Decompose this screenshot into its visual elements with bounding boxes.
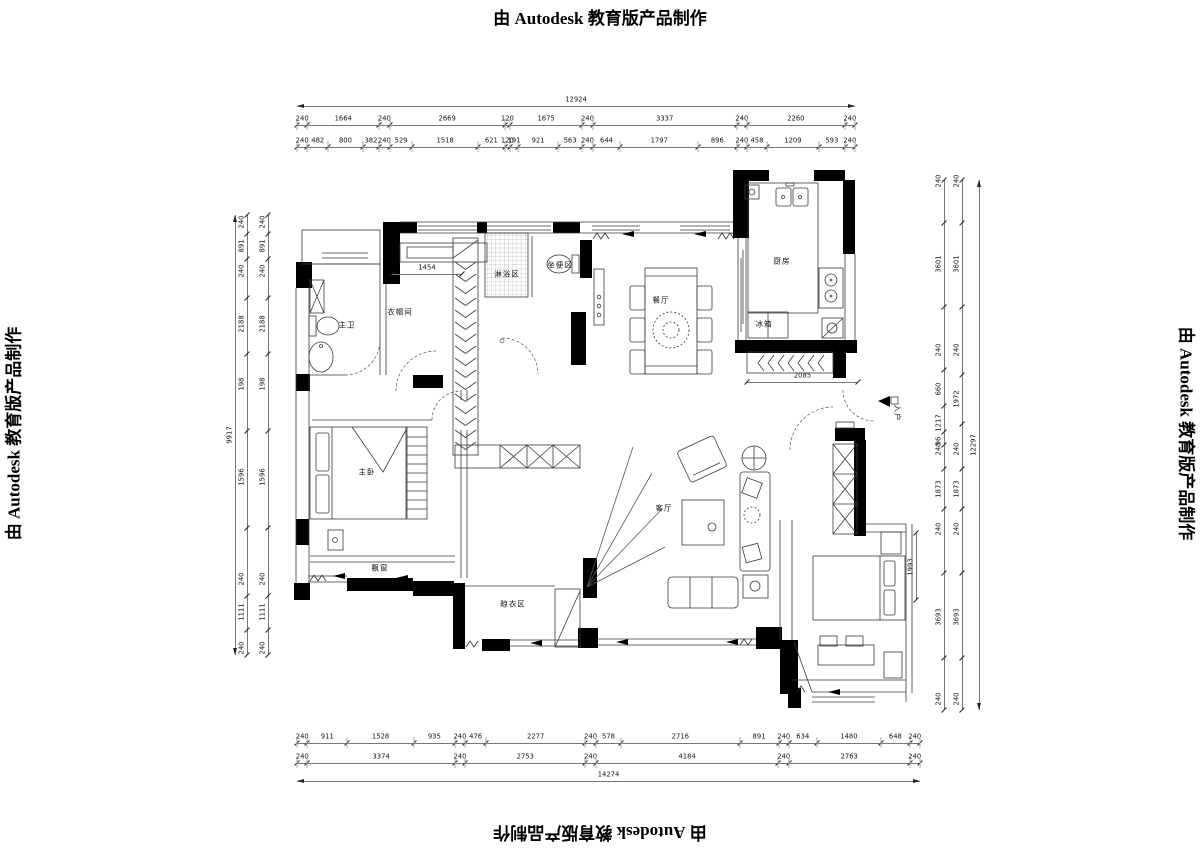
dimension-label: 593 — [825, 138, 838, 145]
dim-tick — [959, 707, 965, 713]
dimension-label: 240 — [260, 573, 267, 586]
dimension-label: 4184 — [678, 754, 695, 761]
dimension-label: 1972 — [954, 390, 961, 407]
dimension-label: 529 — [394, 138, 407, 145]
extension-line — [819, 141, 820, 152]
dimension-label: 2277 — [527, 734, 544, 741]
extension-line — [307, 737, 308, 748]
extension-line — [389, 141, 390, 152]
dimension-label: 1596 — [239, 468, 246, 485]
room-label: 主卧 — [359, 468, 376, 476]
dim-line — [297, 743, 920, 744]
extension-line — [557, 141, 558, 152]
dimension-label: 800 — [339, 138, 352, 145]
room-label: 衣帽间 — [387, 308, 413, 316]
dimension-label: 240 — [936, 523, 943, 536]
dimension-label: 240 — [936, 175, 943, 188]
dim-line — [297, 147, 855, 148]
extension-line — [477, 141, 478, 152]
dimension-label: 648 — [889, 734, 902, 741]
dimension-label: 198 — [260, 378, 267, 391]
dimension-label: 3601 — [954, 255, 961, 272]
dim-line — [916, 533, 917, 600]
dimension-label: 621 — [485, 138, 498, 145]
dim-line — [297, 125, 855, 126]
dimension-label: 14274 — [598, 772, 620, 779]
room-label: 坐便区 — [547, 261, 573, 269]
dimension-label: 563 — [564, 138, 577, 145]
dimension-label: 198 — [239, 378, 246, 391]
dimension-label: 935 — [428, 734, 441, 741]
dimension-label: 458 — [750, 138, 763, 145]
dimension-label: 644 — [600, 138, 613, 145]
dim-line — [747, 382, 858, 383]
dimension-label: 660 — [936, 383, 943, 396]
dimension-label: 1528 — [372, 734, 389, 741]
extension-line — [389, 119, 390, 130]
dimension-label: 240 — [239, 265, 246, 278]
dimension-label: 476 — [469, 734, 482, 741]
dimension-label: 2753 — [517, 754, 534, 761]
dimension-label: 12297 — [971, 434, 978, 456]
extension-line — [595, 737, 596, 748]
dim-line — [235, 215, 236, 655]
dimension-label: 3601 — [936, 255, 943, 272]
dimension-label: 1480 — [840, 734, 857, 741]
dimension-label: 1873 — [954, 480, 961, 497]
extension-line — [592, 141, 593, 152]
dim-arrow-r — [848, 104, 855, 108]
dim-line — [268, 215, 269, 655]
room-label: 厨房 — [774, 257, 791, 265]
dimension-label: 240 — [954, 443, 961, 456]
extension-line — [518, 141, 519, 152]
cad-floor-plan-screenshot: 由 Autodesk 教育版产品制作 由 Autodesk 教育版产品制作 由 … — [0, 0, 1200, 849]
extension-line — [855, 141, 856, 152]
dim-arrow-d — [977, 703, 981, 710]
dimension-label: 1797 — [651, 138, 668, 145]
dim-arrow-l — [297, 779, 304, 783]
dimension-label: 1873 — [936, 480, 943, 497]
extension-line — [920, 737, 921, 748]
extension-line — [747, 119, 748, 130]
extension-line — [413, 737, 414, 748]
dimension-label: 2763 — [841, 754, 858, 761]
dim-tick — [459, 271, 465, 277]
dimension-label: 2260 — [787, 116, 804, 123]
dimension-label: 3693 — [936, 608, 943, 625]
extension-line — [698, 141, 699, 152]
extension-line — [788, 757, 789, 768]
dimension-label: 3374 — [372, 754, 389, 761]
dimension-label: 240 — [239, 216, 246, 229]
dimension-label: 1217 — [936, 414, 943, 431]
dimension-label: 240 — [954, 175, 961, 188]
dimension-label: 240 — [260, 642, 267, 655]
dim-arrow-u — [977, 180, 981, 187]
extension-line — [788, 737, 789, 748]
extension-line — [592, 119, 593, 130]
room-label: 客厅 — [656, 504, 673, 512]
dim-arrow-l — [297, 104, 304, 108]
dimension-label: 240 — [954, 693, 961, 706]
room-label: 冰箱 — [756, 320, 773, 328]
dim-line — [247, 215, 248, 655]
dimension-label: 911 — [321, 734, 334, 741]
extension-line — [816, 737, 817, 748]
dimension-label: 1518 — [437, 138, 454, 145]
extension-line — [347, 737, 348, 748]
dimension-label: 896 — [711, 138, 724, 145]
dim-tick — [941, 707, 947, 713]
dimension-label: 240 — [936, 344, 943, 357]
dimension-label: 2085 — [794, 373, 811, 380]
dimension-label: 891 — [260, 240, 267, 253]
dimension-label: 578 — [602, 734, 615, 741]
extension-line — [362, 141, 363, 152]
extension-line — [621, 737, 622, 748]
extension-line — [307, 141, 308, 152]
dim-line — [392, 274, 462, 275]
extension-line — [920, 757, 921, 768]
dim-line — [962, 180, 963, 710]
dimension-label: 240 — [260, 216, 267, 229]
annotation-layer: 2401664240266912016752403337240226024024… — [0, 0, 1200, 849]
extension-line — [766, 141, 767, 152]
extension-line — [485, 737, 486, 748]
dimension-label: 240 — [239, 642, 246, 655]
dim-arrow-d — [233, 648, 237, 655]
dim-line — [979, 180, 980, 710]
dimension-label: 240 — [239, 573, 246, 586]
dimension-label: 1111 — [260, 603, 267, 620]
extension-line — [465, 757, 466, 768]
extension-line — [307, 119, 308, 130]
dimension-label: 240 — [954, 523, 961, 536]
dimension-label: 891 — [239, 240, 246, 253]
dim-line — [297, 106, 855, 107]
dimension-label: 921 — [532, 138, 545, 145]
room-label: 淋浴区 — [494, 270, 520, 278]
extension-line — [620, 141, 621, 152]
dim-arrow-u — [233, 215, 237, 222]
dimension-label: 3693 — [954, 608, 961, 625]
dimension-label: 240 — [936, 693, 943, 706]
dimension-label: 1675 — [537, 116, 554, 123]
dim-line — [297, 781, 920, 782]
dimension-label: 240 — [954, 344, 961, 357]
extension-line — [509, 119, 510, 130]
dimension-label: 2716 — [672, 734, 689, 741]
dimension-label: 1596 — [260, 468, 267, 485]
extension-line — [739, 737, 740, 748]
dim-line — [297, 763, 920, 764]
room-label: 餐厅 — [653, 296, 670, 304]
dimension-label: 1454 — [418, 265, 435, 272]
dimension-label: 12924 — [565, 97, 587, 104]
dimension-label: 1993 — [908, 558, 915, 575]
dimension-label: 1209 — [784, 138, 801, 145]
dimension-label: 9917 — [227, 426, 234, 443]
extension-line — [747, 141, 748, 152]
extension-line — [595, 757, 596, 768]
extension-line — [465, 737, 466, 748]
room-label: 入户 — [893, 405, 901, 422]
dimension-label: 482 — [311, 138, 324, 145]
dimension-label: 1664 — [335, 116, 352, 123]
dimension-label: 891 — [753, 734, 766, 741]
extension-line — [881, 737, 882, 748]
dim-tick — [855, 379, 861, 385]
dimension-label: 3337 — [656, 116, 673, 123]
dimension-label: 2188 — [260, 315, 267, 332]
room-label: 晾衣区 — [500, 600, 526, 608]
dimension-label: 240 — [260, 265, 267, 278]
dimension-label: 634 — [796, 734, 809, 741]
room-label: 主卫 — [339, 321, 356, 329]
dim-tick — [913, 597, 919, 603]
extension-line — [412, 141, 413, 152]
extension-line — [307, 757, 308, 768]
dimension-label: 240 — [936, 443, 943, 456]
extension-line — [855, 119, 856, 130]
room-label: 飘窗 — [372, 564, 389, 572]
dimension-label: 1111 — [239, 603, 246, 620]
dimension-label: 2188 — [239, 315, 246, 332]
dim-arrow-r — [913, 779, 920, 783]
dimension-label: 382 — [364, 138, 377, 145]
extension-line — [328, 141, 329, 152]
dimension-label: 2669 — [439, 116, 456, 123]
